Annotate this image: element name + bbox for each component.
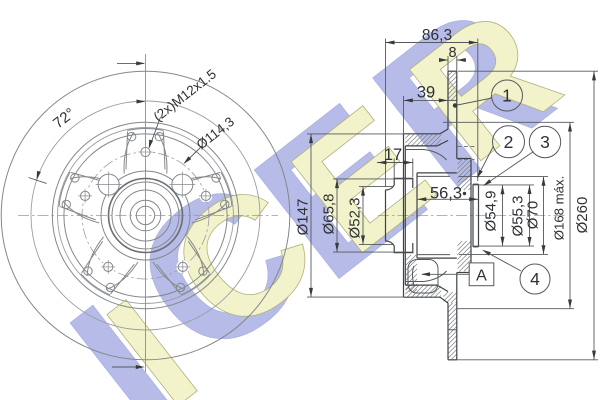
svg-text:4: 4: [530, 269, 540, 289]
svg-text:Ø260: Ø260: [574, 197, 591, 234]
svg-text:Ø52,3: Ø52,3: [347, 198, 364, 239]
svg-text:1: 1: [502, 86, 512, 106]
svg-text:(2x)M12x1.5: (2x)M12x1.5: [151, 66, 219, 124]
svg-text:56,3: 56,3: [430, 185, 462, 203]
svg-text:Ø70: Ø70: [525, 201, 542, 229]
svg-text:Ø54,9: Ø54,9: [483, 191, 500, 232]
svg-text:17: 17: [384, 146, 402, 164]
svg-text:39: 39: [417, 84, 435, 102]
svg-text:8: 8: [448, 45, 456, 61]
svg-text:86,3: 86,3: [422, 27, 452, 44]
svg-text:Ø168 máx.: Ø168 máx.: [552, 176, 567, 241]
svg-text:Ø65,8: Ø65,8: [321, 194, 338, 235]
svg-text:A: A: [476, 268, 487, 285]
svg-text:3: 3: [540, 132, 550, 152]
svg-text:2: 2: [504, 132, 514, 152]
svg-text:72°: 72°: [50, 105, 78, 132]
svg-text:Ø147: Ø147: [295, 199, 312, 236]
